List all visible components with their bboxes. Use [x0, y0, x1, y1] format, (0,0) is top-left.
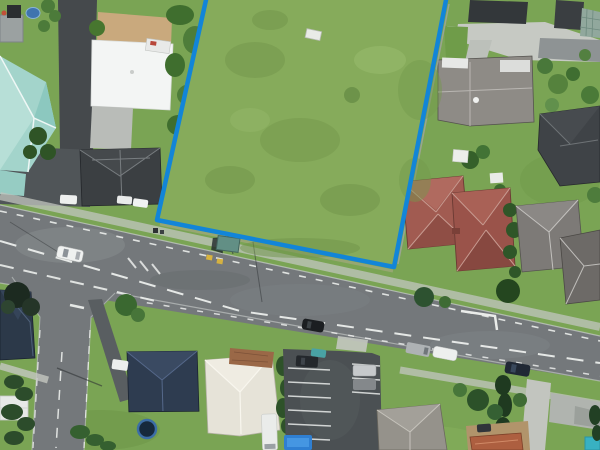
south-centre-properties — [205, 336, 382, 450]
verge-tree — [414, 287, 434, 307]
checkered-roof-garage — [580, 8, 600, 38]
red-roof-house-b — [452, 188, 515, 271]
dark-yard-objects — [7, 5, 21, 18]
van-white-bottom — [261, 414, 277, 450]
aerial-map-canvas[interactable] — [0, 0, 600, 450]
car-dark-bottom-right — [477, 424, 492, 433]
charcoal-flat-roof — [468, 0, 528, 24]
red-yard-object — [2, 11, 7, 16]
grass-pocket — [444, 26, 468, 60]
white-gazebo-2 — [490, 173, 504, 184]
navy-roof-house-2 — [125, 349, 201, 415]
grey-hip-house-east-2 — [560, 230, 600, 304]
verge-tree — [496, 279, 520, 303]
taupe-roof-house — [438, 56, 534, 126]
round-garden-pool — [26, 8, 40, 19]
dark-flat-roof — [554, 0, 584, 30]
car-grey-in-lot — [353, 379, 376, 390]
car-dark-in-lot — [296, 355, 319, 368]
white-gazebo-1 — [453, 149, 469, 162]
grey-hip-house-southeast — [377, 404, 447, 450]
blue-pool-cover-highlight — [287, 438, 309, 447]
grey-shed-roof — [0, 15, 23, 42]
parking-lot — [283, 336, 382, 450]
chimney — [452, 228, 460, 234]
verge-tree — [439, 296, 451, 308]
car-silver-in-lot — [353, 365, 376, 376]
tree — [131, 308, 145, 322]
